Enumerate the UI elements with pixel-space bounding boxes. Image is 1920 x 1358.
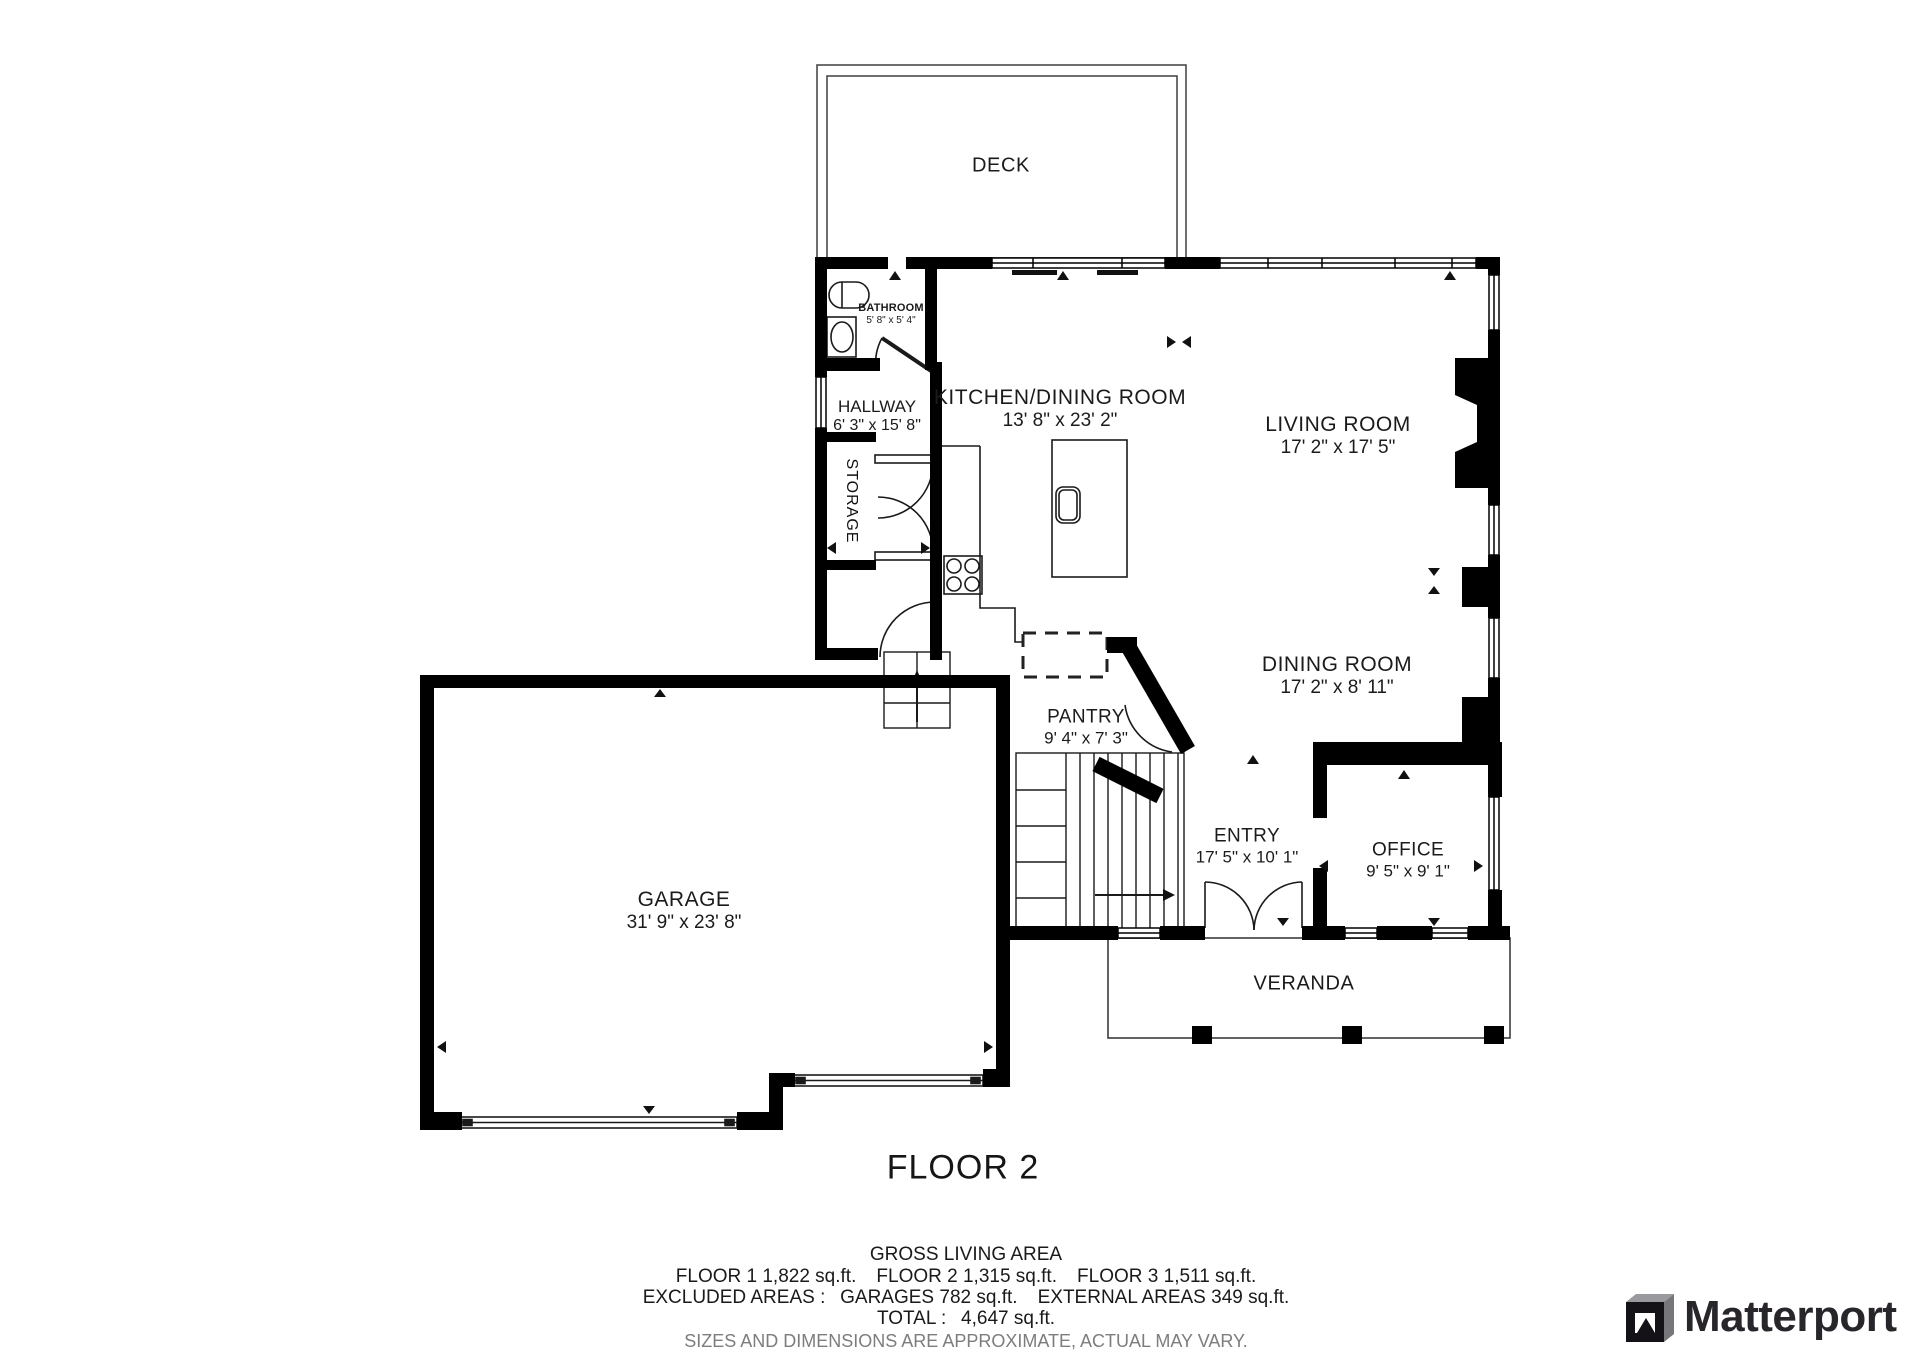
room-label-garage: GARAGE 31' 9" x 23' 8" [627,888,742,934]
kitchen-island [1052,440,1127,577]
room-label-bathroom: BATHROOM 5' 8" x 5' 4" [858,302,924,326]
garage-door-icons [460,1075,983,1128]
gross-living-area-heading: GROSS LIVING AREA [426,1244,1506,1266]
main-staircase [1016,753,1184,935]
excluded-areas-line: EXCLUDED AREAS : GARAGES 782 sq.ft. EXTE… [426,1287,1506,1309]
floor-areas-line: FLOOR 1 1,822 sq.ft. FLOOR 2 1,315 sq.ft… [426,1266,1506,1288]
room-label-office: OFFICE 9' 5" x 9' 1" [1366,839,1450,880]
room-label-pantry: PANTRY 9' 4" x 7' 3" [1044,706,1128,747]
room-label-deck: DECK [972,155,1030,178]
room-label-entry: ENTRY 17' 5" x 10' 1" [1196,825,1299,866]
room-label-kitchen: KITCHEN/DINING ROOM 13' 8" x 23' 2" [934,386,1186,432]
disclaimer-line: SIZES AND DIMENSIONS ARE APPROXIMATE, AC… [426,1331,1506,1352]
pantry-passthrough-dashed [1023,633,1107,677]
matterport-logo: Matterport [1618,1290,1918,1350]
room-label-storage: STORAGE [842,459,860,544]
room-label-living: LIVING ROOM 17' 2" x 17' 5" [1265,413,1411,459]
room-label-hallway: HALLWAY 6' 3" x 15' 8" [833,397,921,435]
matterport-wordmark: Matterport [1684,1292,1897,1342]
cooktop-icon [944,556,982,594]
deck-label: DECK [972,155,1030,178]
hallway-staircase [884,652,950,728]
total-area-line: TOTAL : 4,647 sq.ft. [426,1308,1506,1330]
floor-title: FLOOR 2 [887,1149,1039,1188]
toilet-icon [827,317,856,357]
windows [816,258,1499,938]
counter-bars [1012,270,1138,275]
room-label-veranda: VERANDA [1254,973,1355,996]
matterport-icon [1618,1290,1674,1346]
kitchen-counter-line [942,446,1023,642]
fireplace-niche [1455,395,1477,452]
floorplan-canvas: DECK BATHROOM 5' 8" x 5' 4" HALLWAY 6' 3… [0,0,1920,1358]
room-label-dining: DINING ROOM 17' 2" x 8' 11" [1262,653,1412,699]
